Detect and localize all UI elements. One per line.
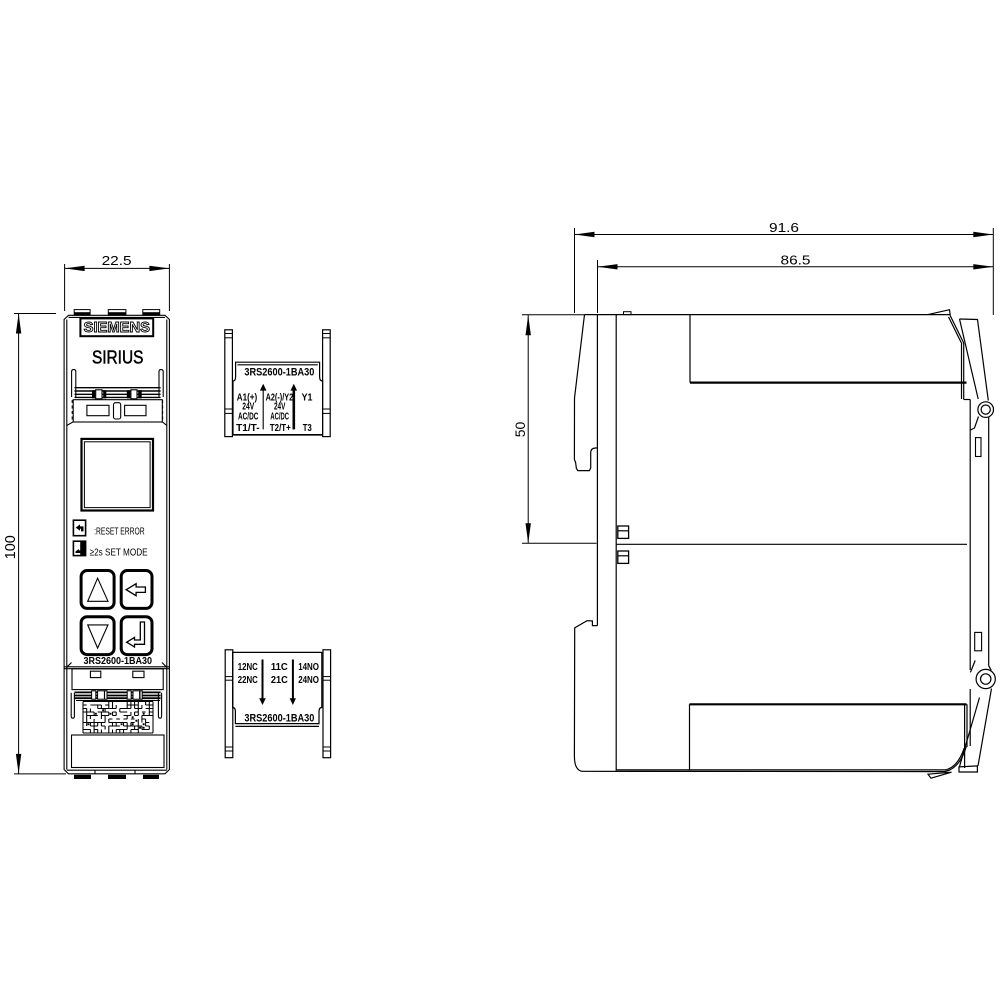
svg-text:21C: 21C [271,675,288,686]
svg-text:22.5: 22.5 [102,253,132,268]
svg-text:SIEMENS: SIEMENS [84,320,151,336]
svg-text:AC/DC: AC/DC [238,412,258,423]
svg-text::RESET ERROR: :RESET ERROR [94,526,145,538]
svg-text:T1/T-: T1/T- [236,423,259,434]
svg-text:SIRIUS: SIRIUS [92,347,144,368]
svg-text:11C: 11C [271,662,288,673]
svg-text:3RS2600-1BA30: 3RS2600-1BA30 [244,366,314,378]
svg-text:14NO: 14NO [298,662,319,673]
svg-text:24NO: 24NO [298,675,319,686]
svg-text:3RS2600-1BA30: 3RS2600-1BA30 [84,656,153,667]
svg-text:AC/DC: AC/DC [270,412,289,423]
svg-text:22NC: 22NC [238,675,258,686]
svg-text:100: 100 [3,535,19,559]
svg-text:T3: T3 [303,423,312,434]
svg-text:T2/T+: T2/T+ [270,423,291,434]
svg-text:≥2s SET MODE: ≥2s SET MODE [90,546,148,558]
svg-text:Y1: Y1 [302,393,313,404]
svg-text:86.5: 86.5 [781,252,811,267]
svg-text:50: 50 [512,422,528,438]
svg-text:3RS2600-1BA30: 3RS2600-1BA30 [244,713,314,725]
svg-text:91.6: 91.6 [769,220,799,235]
svg-text:12NC: 12NC [238,662,258,673]
